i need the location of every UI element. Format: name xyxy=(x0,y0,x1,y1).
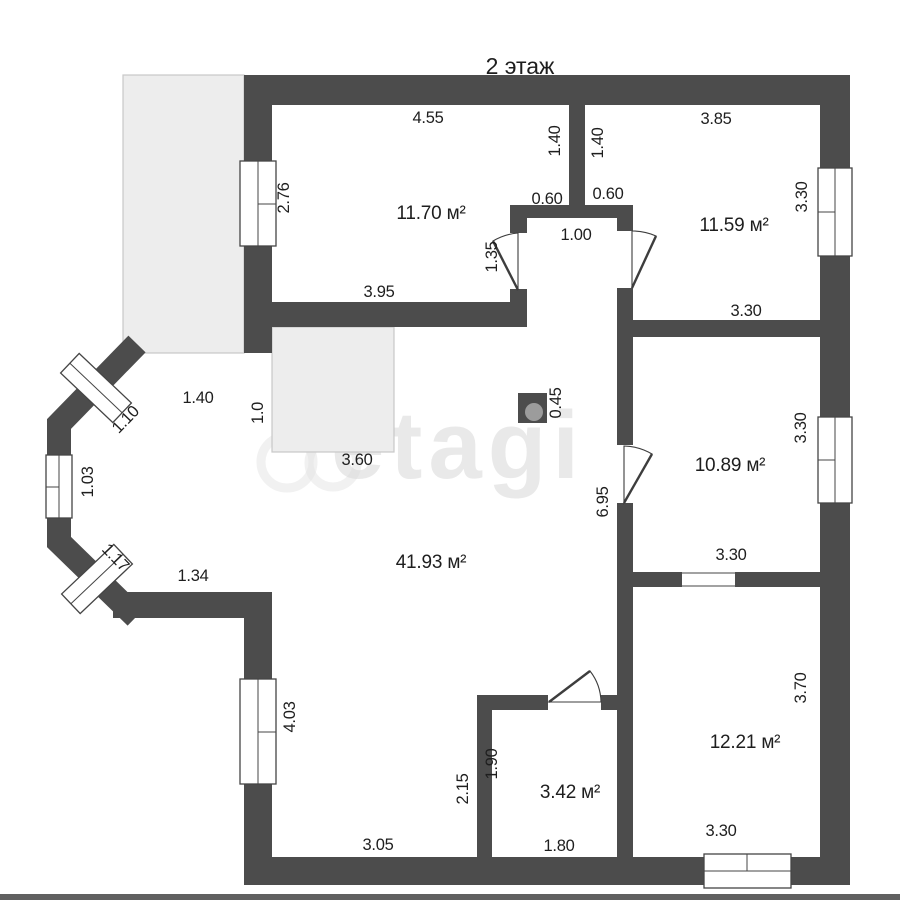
wall-room-mid-bottom-left xyxy=(633,572,682,587)
dim-3-95: 3.95 xyxy=(364,283,395,301)
wall-vestibule-top xyxy=(510,205,633,218)
dim-1-35: 1.35 xyxy=(483,241,501,272)
dim-1-40-nook: 1.40 xyxy=(183,389,214,407)
wall-corridor-lower xyxy=(617,503,633,857)
dim-3-30-bedroom-right: 3.30 xyxy=(731,302,762,320)
dim-3-05: 3.05 xyxy=(363,836,394,854)
dim-1-03: 1.03 xyxy=(79,466,97,497)
wall-bath-top-left xyxy=(477,695,548,710)
dim-0-45: 0.45 xyxy=(547,387,565,418)
dim-1-0: 1.0 xyxy=(249,402,267,424)
opening-room-mid-to-bottom xyxy=(682,572,735,587)
wall-corridor-upper xyxy=(617,288,633,445)
window-bottom xyxy=(704,854,791,888)
room-label-room-mid: 10.89 м² xyxy=(695,455,766,476)
floorplan-page: etagi xyxy=(0,0,900,900)
dim-1-90: 1.90 xyxy=(483,748,501,779)
dim-2-15: 2.15 xyxy=(454,773,472,804)
dim-6-95: 6.95 xyxy=(594,486,612,517)
room-label-bedroom-left: 11.70 м² xyxy=(396,203,465,224)
bottom-edge-strip xyxy=(0,894,900,900)
wall-vestibule-right-stub-top xyxy=(617,218,633,231)
dim-1-00: 1.00 xyxy=(561,226,592,244)
window-left-top xyxy=(240,161,276,246)
wall-bedroom-right-bottom xyxy=(617,320,820,337)
room-label-room-bottom: 12.21 м² xyxy=(710,732,781,753)
wall-bedroom-divider xyxy=(569,105,585,205)
wall-top xyxy=(244,75,850,105)
dim-4-55: 4.55 xyxy=(413,109,444,127)
dim-0-60-left: 0.60 xyxy=(532,190,563,208)
room-label-living: 41.93 м² xyxy=(396,552,467,573)
floor-title: 2 этаж xyxy=(486,53,555,79)
dim-3-70: 3.70 xyxy=(792,672,810,703)
dim-1-34: 1.34 xyxy=(178,567,209,585)
wall-bath-left xyxy=(477,710,492,857)
dim-1-40-left: 1.40 xyxy=(546,125,564,156)
dim-3-30-window-mid-right: 3.30 xyxy=(792,412,810,443)
staircase-slab xyxy=(272,327,394,452)
dim-0-60-right: 0.60 xyxy=(593,185,624,203)
window-right-mid xyxy=(818,417,852,503)
window-right-top xyxy=(818,168,852,256)
dim-2-76: 2.76 xyxy=(275,182,293,213)
chimney-shaft xyxy=(518,393,547,423)
bay-window-left xyxy=(46,455,72,518)
wall-bay-bottom xyxy=(113,592,272,618)
terrace-slab xyxy=(123,75,244,353)
dim-3-30-window-top-right: 3.30 xyxy=(793,181,811,212)
wall-vestibule-left-stub-top xyxy=(510,218,527,233)
room-label-bedroom-right: 11.59 м² xyxy=(699,215,768,236)
room-label-bathroom: 3.42 м² xyxy=(540,782,600,803)
floorplan-drawing: etagi xyxy=(0,0,900,900)
dim-3-60: 3.60 xyxy=(342,451,373,469)
dim-3-30-room-bottom: 3.30 xyxy=(706,822,737,840)
wall-bath-top-stub xyxy=(601,695,617,710)
wall-bedroom-left-bottom xyxy=(244,302,527,327)
dim-4-03: 4.03 xyxy=(281,701,299,732)
wall-room-mid-bottom-right xyxy=(735,572,820,587)
dim-3-30-room-mid: 3.30 xyxy=(716,546,747,564)
wall-vestibule-left-stub-bottom xyxy=(510,289,527,327)
dim-3-85: 3.85 xyxy=(701,110,732,128)
window-left-bottom xyxy=(240,679,276,784)
dim-1-40-right: 1.40 xyxy=(589,127,607,158)
dim-1-80: 1.80 xyxy=(544,837,575,855)
